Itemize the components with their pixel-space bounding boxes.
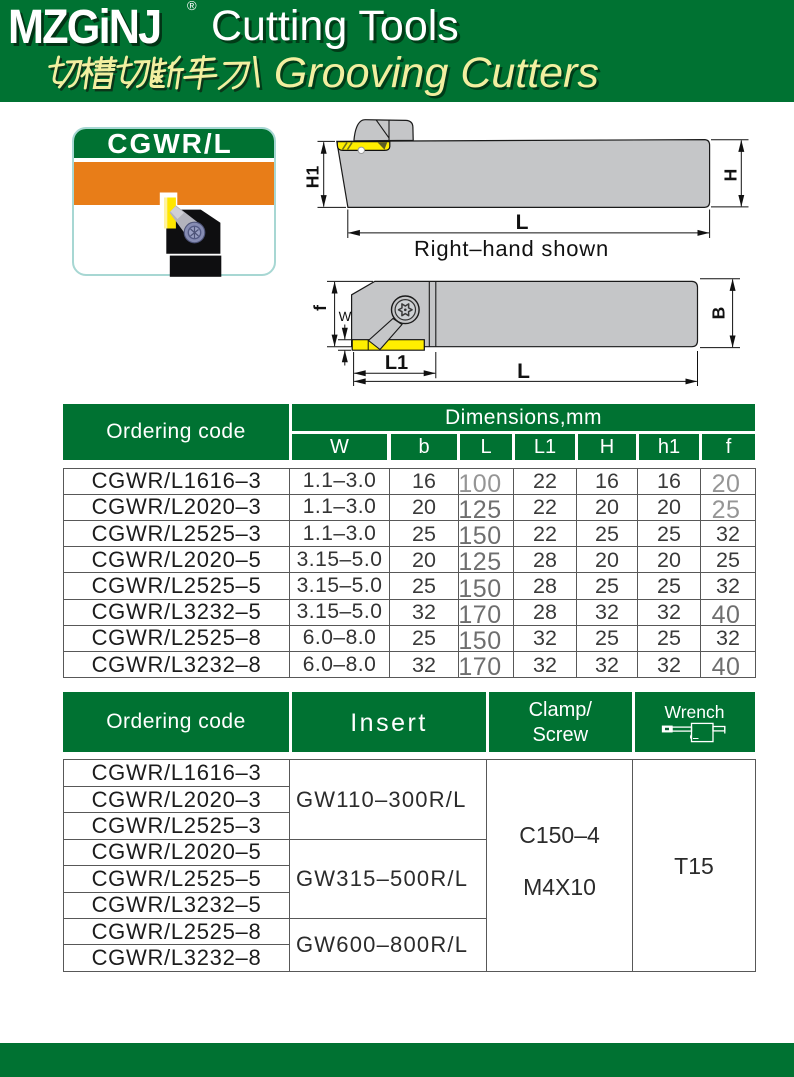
svg-text:Right–hand shown: Right–hand shown bbox=[414, 236, 609, 261]
svg-text:f: f bbox=[310, 305, 330, 311]
svg-text:W: W bbox=[339, 309, 352, 324]
svg-text:H1: H1 bbox=[303, 166, 323, 189]
svg-text:H: H bbox=[721, 169, 741, 182]
svg-text:L: L bbox=[517, 360, 530, 383]
svg-text:B: B bbox=[709, 307, 729, 320]
svg-text:Wrench: Wrench bbox=[664, 702, 724, 722]
svg-text:L: L bbox=[516, 211, 529, 234]
svg-text:L1: L1 bbox=[385, 352, 408, 374]
